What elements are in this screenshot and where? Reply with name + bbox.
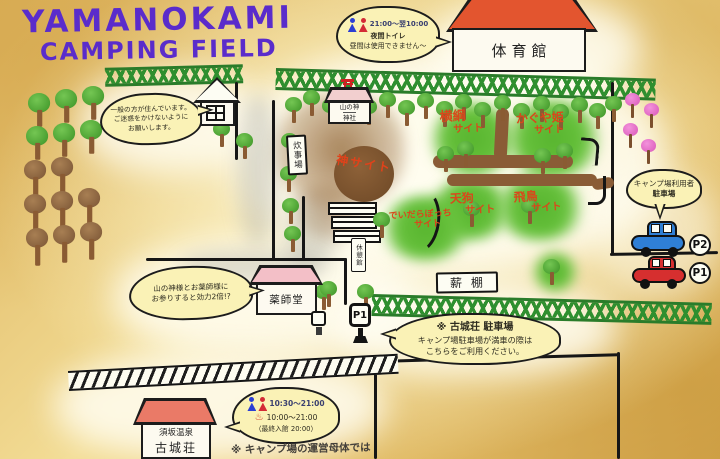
p1-sign-post (358, 328, 363, 337)
overflow-line1: ※ 古城荘 駐車場 (437, 321, 514, 335)
toilet-woman-icon (258, 397, 267, 411)
p2-badge-label: P2 (692, 239, 707, 251)
bubble-night-toilet-row: 21:00〜翌10:00 (348, 18, 429, 32)
page-title-line2: CAMPING FIELD (40, 34, 278, 66)
pray-line2: お参りすると効力2倍!? (151, 292, 231, 305)
blue-car-window (663, 224, 672, 233)
bubble-tail (249, 282, 266, 299)
tree-bare-icon (51, 191, 73, 229)
bubble-tail (652, 204, 668, 220)
toilet-man-icon (247, 397, 256, 411)
site-suffix: サイト (534, 124, 564, 136)
site-name: 横綱 (439, 109, 466, 125)
torii-icon (341, 79, 354, 88)
tree-green-icon (589, 103, 606, 129)
kojoso-roof (133, 398, 217, 425)
kojoso-building: 須坂温泉 古城荘 (141, 423, 211, 459)
shrine-building: 山の神 神社 (328, 101, 371, 124)
tree-green-icon (284, 226, 301, 252)
tree-green-icon (398, 100, 415, 126)
onsen-last-entry: （最終入館 20:00） (255, 425, 318, 434)
overflow-line3: こちらをご利用ください。 (426, 346, 524, 357)
tree-green-icon (571, 97, 588, 123)
cooking-area-label: 炊事場 (290, 140, 303, 169)
toilet-woman-icon (359, 18, 368, 32)
footnote: ※ キャンプ場の運営母体では (231, 440, 371, 457)
camp-parking-line2: 駐車場 (653, 189, 676, 199)
tree-green-icon (26, 126, 48, 160)
tree-green-icon (373, 212, 390, 238)
blue-car-wheel (641, 247, 651, 257)
site-label-asuka: 飛鳥 サイト (513, 188, 562, 215)
tree-green-icon (556, 143, 573, 169)
yakushido-label: 薬師堂 (269, 292, 304, 307)
site-suffix: サイト (414, 219, 452, 231)
residents-line3: お願いします。 (128, 123, 175, 134)
rest-hut-sign: 休憩館 (351, 238, 366, 272)
tree-bare-icon (24, 160, 46, 198)
bubble-night-toilet: 21:00〜翌10:00 夜間トイレ 昼間は使用できません〜 (336, 6, 440, 63)
p1-badge: P1 (689, 262, 711, 284)
onsen-time: 10:00〜21:00 (267, 413, 318, 423)
tree-green-icon (534, 148, 551, 174)
small-sign-post (316, 327, 322, 335)
onsen-time-row: ♨ 10:00〜21:00 (255, 411, 318, 425)
tree-bare-icon (26, 228, 48, 266)
bubble-overflow-parking: ※ 古城荘 駐車場 キャンプ場駐車場が満車の際は こちらをご利用ください。 (389, 313, 561, 365)
site-label-yokozuna: 横綱 サイト (439, 109, 483, 137)
toilet-man-icon (348, 18, 357, 32)
site-name: 天狗 (450, 191, 474, 206)
tree-green-icon (28, 93, 50, 127)
cooking-area-sign: 炊事場 (286, 135, 308, 176)
tree-green-icon (437, 146, 454, 172)
kojoso-label-1: 須坂温泉 (159, 428, 193, 440)
tree-blossom-icon (644, 103, 659, 128)
bubble-tail (380, 326, 396, 342)
bubble-camp-parking: キャンプ場利用者 駐車場 (626, 169, 702, 209)
gym-building: 体育館 (452, 28, 586, 72)
tree-bare-icon (53, 225, 75, 263)
map-canvas: 体育館 山の神 神社 炊事場 休憩館 薬師堂 薪棚 須坂温泉 古城荘 P1 (0, 0, 720, 459)
overflow-line2: キャンプ場駐車場が満車の際は (418, 335, 532, 346)
site-suffix: サイト (465, 204, 495, 216)
trees-layer (0, 0, 720, 459)
kojoso-label-2: 古城荘 (155, 440, 197, 457)
night-toilet-line2: 昼間は使用できません〜 (350, 42, 427, 51)
woodshed-label: 薪棚 (450, 274, 492, 292)
tree-green-icon (285, 97, 302, 123)
tree-green-icon (379, 92, 396, 118)
bubble-tail (436, 34, 452, 50)
tree-bare-icon (51, 157, 73, 195)
site-label-kaguya: かぐや姫 サイト (516, 111, 565, 137)
tree-green-icon (303, 90, 320, 116)
bubble-tail (224, 419, 240, 435)
tree-blossom-icon (641, 139, 656, 164)
red-car-window (663, 259, 671, 267)
tree-blossom-icon (625, 93, 640, 118)
blue-car-window (651, 224, 660, 233)
tree-green-icon (80, 120, 102, 154)
onsen-toilet-time: 10:30〜21:00 (269, 399, 324, 409)
shrine-label-2: 神社 (343, 112, 356, 122)
night-toilet-hours: 21:00〜翌10:00 (370, 20, 429, 29)
yakushido-building: 薬師堂 (256, 283, 317, 315)
p2-badge: P2 (689, 234, 711, 256)
tree-green-icon (236, 133, 253, 159)
site-suffix: サイト (531, 202, 562, 215)
red-car-window (652, 259, 660, 267)
tree-green-icon (417, 93, 434, 119)
tree-bare-icon (24, 194, 46, 232)
p1-sign: P1 (349, 303, 371, 327)
tree-green-icon (494, 95, 511, 121)
p1-sign-label: P1 (353, 310, 367, 321)
rest-hut-label: 休憩館 (354, 244, 364, 267)
red-car-wheel (640, 279, 650, 289)
onsen-toilet-row: 10:30〜21:00 (247, 397, 324, 411)
shrine-label-1: 山の神 (340, 103, 360, 111)
bubble-tail (197, 102, 214, 119)
tree-green-icon (457, 141, 474, 167)
gym-label: 体育館 (491, 40, 551, 61)
night-toilet-line1: 夜間トイレ (371, 32, 406, 41)
red-car-wheel (667, 279, 677, 289)
tree-green-icon (53, 123, 75, 157)
p1-badge-label: P1 (692, 267, 707, 279)
woodshed-sign: 薪棚 (436, 271, 498, 293)
site-suffix: サイト (453, 123, 484, 136)
small-sign (311, 311, 326, 326)
hot-spring-icon: ♨ (255, 411, 264, 425)
tree-green-icon (55, 89, 77, 123)
tree-green-icon (543, 259, 560, 285)
site-label-deidarabotchi: でいだらぼっち サイト (389, 209, 453, 232)
tree-green-icon (282, 198, 299, 224)
site-label-tengu: 天狗 サイト (450, 191, 496, 217)
tree-green-icon (605, 96, 622, 122)
tree-bare-icon (78, 188, 100, 226)
tree-blossom-icon (623, 123, 638, 148)
tree-bare-icon (80, 222, 102, 260)
camp-parking-line1: キャンプ場利用者 (634, 179, 695, 189)
bubble-onsen-hours: 10:30〜21:00 ♨ 10:00〜21:00 （最終入館 20:00） (232, 387, 340, 444)
